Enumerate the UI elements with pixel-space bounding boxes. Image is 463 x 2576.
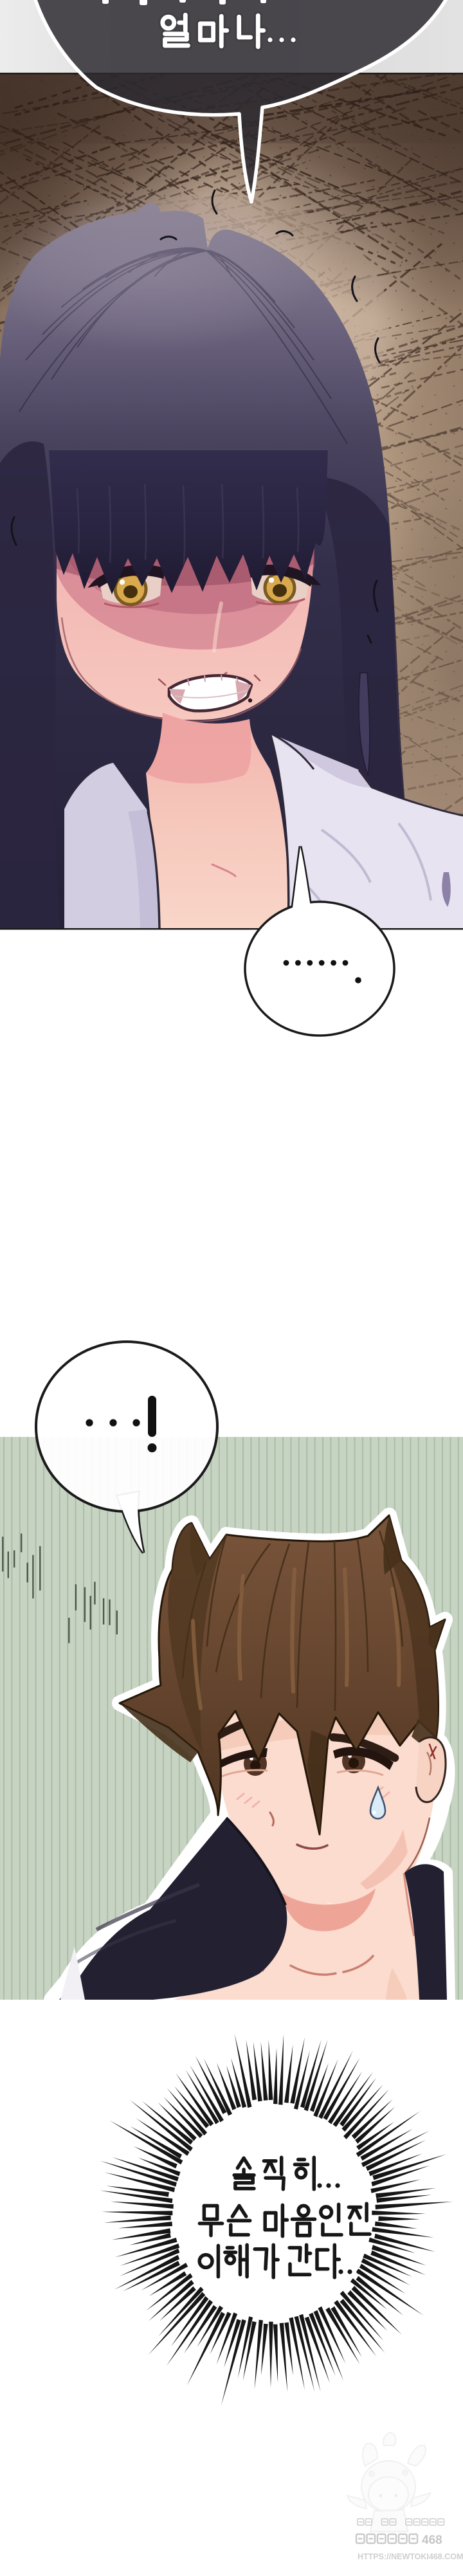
svg-text:468: 468: [422, 2534, 442, 2547]
svg-text:HTTPS://NEWTOKI468.COM: HTTPS://NEWTOKI468.COM: [358, 2552, 463, 2561]
